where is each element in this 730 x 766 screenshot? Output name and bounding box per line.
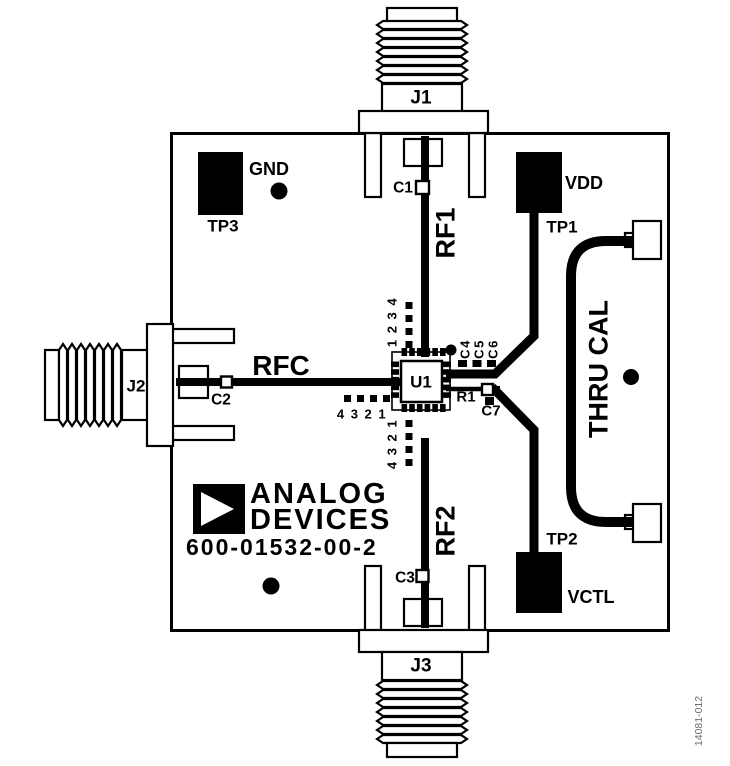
u1-top-pin-numbers: 1 2 3 4: [386, 297, 399, 347]
vdd-label: VDD: [565, 174, 603, 192]
u1-left-pin-numbers: 4 3 2 1: [337, 408, 387, 421]
tp3-label: TP3: [207, 218, 238, 235]
j3-label: J3: [410, 657, 431, 676]
r1-body: [482, 384, 493, 395]
bottom-via-dot: [263, 578, 280, 595]
c6-label: C6: [487, 339, 500, 359]
c2-label: C2: [211, 392, 231, 408]
rf2-trace: [421, 438, 429, 628]
thru-cal-via-dot: [623, 369, 639, 385]
pcb-graphics: [0, 0, 730, 766]
j1-label: J1: [410, 89, 431, 108]
board-part-number: 600-01532-00-2: [186, 536, 378, 559]
c5-label: C5: [473, 339, 486, 359]
u1-label: U1: [410, 374, 432, 391]
c3-label: C3: [395, 570, 415, 586]
u1-bottom-pin-numbers: 4 3 2 1: [386, 419, 399, 469]
tp1-pad: [516, 152, 562, 213]
r1-label: R1: [456, 390, 475, 405]
c1-body: [416, 181, 429, 194]
rfc-label: RFC: [252, 352, 310, 380]
figure-doc-code: 14081-012: [694, 696, 705, 746]
adi-logo-mark: [193, 484, 245, 534]
tp1-label: TP1: [546, 219, 577, 236]
c3-body: [417, 570, 429, 582]
u1-pin1-dot: [446, 345, 457, 356]
c4-label: C4: [459, 339, 472, 359]
tp2-label: TP2: [546, 531, 577, 548]
c7-label: C7: [481, 404, 500, 419]
rf1-trace: [421, 136, 429, 357]
gnd-via-dot: [271, 183, 288, 200]
tp2-pad: [516, 552, 562, 613]
c1-label: C1: [393, 180, 413, 196]
j2-label: J2: [127, 378, 146, 395]
gnd-label: GND: [249, 160, 289, 178]
tp3-pad: [198, 152, 243, 215]
c2-body: [221, 377, 232, 388]
rf1-label: RF1: [433, 207, 460, 258]
vctl-label: VCTL: [568, 588, 615, 606]
rf2-label: RF2: [433, 505, 460, 556]
brand-line2: DEVICES: [250, 506, 391, 535]
thru-cal-label: THRU CAL: [586, 300, 613, 438]
eval-board-figure: J1 J2 J3 GND TP3 VDD TP1 TP2 VCTL RFC RF…: [0, 0, 730, 766]
